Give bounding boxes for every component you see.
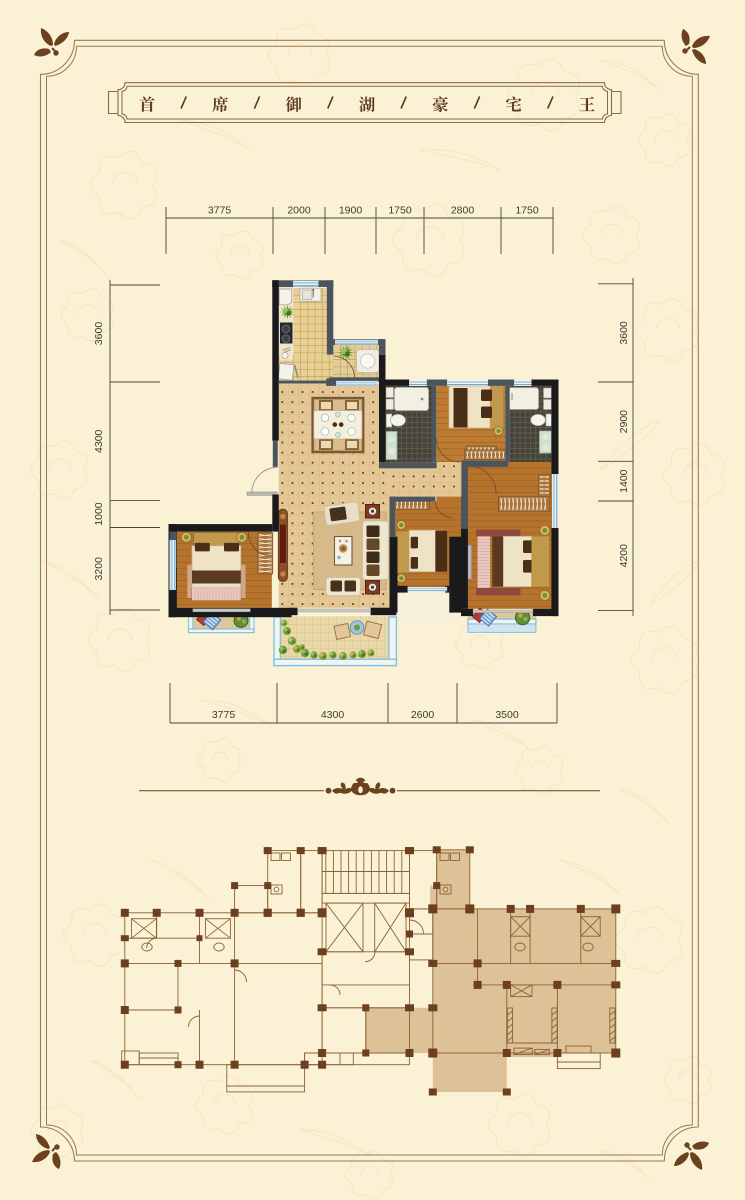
svg-text:4300: 4300 bbox=[321, 709, 345, 721]
svg-text:1900: 1900 bbox=[339, 205, 363, 217]
svg-text:1750: 1750 bbox=[515, 205, 539, 217]
svg-text:3500: 3500 bbox=[495, 709, 519, 721]
svg-text:2600: 2600 bbox=[411, 709, 435, 721]
svg-text:3200: 3200 bbox=[93, 557, 105, 581]
svg-text:2000: 2000 bbox=[287, 205, 311, 217]
svg-text:3775: 3775 bbox=[212, 709, 236, 721]
svg-text:4200: 4200 bbox=[618, 544, 630, 568]
svg-text:4300: 4300 bbox=[93, 429, 105, 453]
svg-text:3775: 3775 bbox=[208, 205, 232, 217]
svg-text:1750: 1750 bbox=[388, 205, 412, 217]
svg-text:3600: 3600 bbox=[618, 321, 630, 345]
svg-text:1000: 1000 bbox=[93, 502, 105, 526]
svg-text:2900: 2900 bbox=[618, 410, 630, 434]
svg-text:3600: 3600 bbox=[93, 322, 105, 346]
svg-text:1400: 1400 bbox=[618, 469, 630, 493]
svg-text:2800: 2800 bbox=[451, 205, 475, 217]
